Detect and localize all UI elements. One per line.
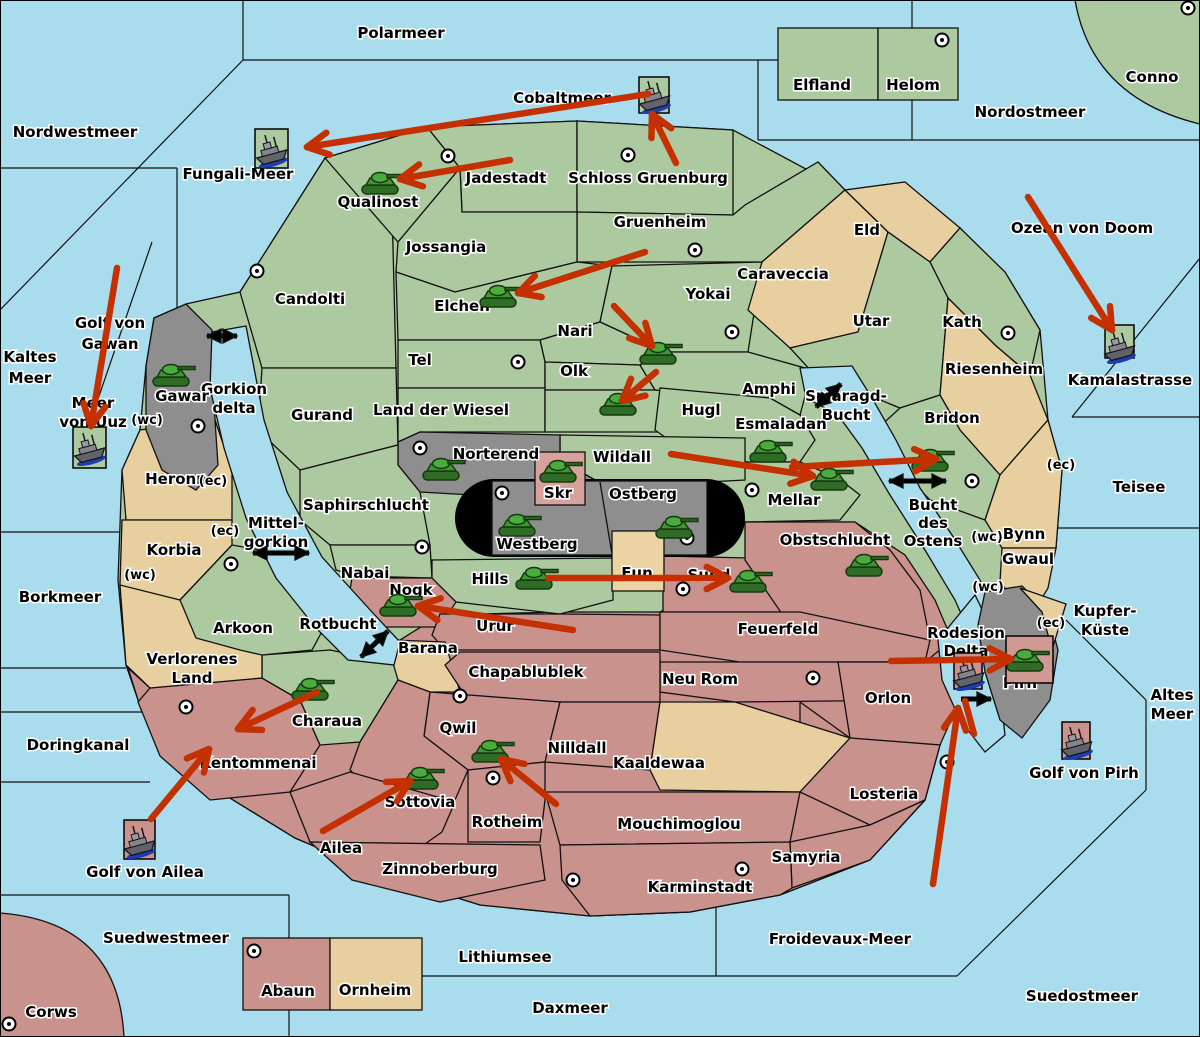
map-label: Losteria	[850, 785, 919, 803]
map-label: Gawar	[155, 387, 209, 405]
map-label: Hills	[472, 570, 509, 588]
city-marker	[677, 583, 690, 596]
map-label: Hugl	[681, 401, 720, 419]
map-label: Doringkanal	[27, 736, 130, 754]
map-label: Korbia	[146, 541, 201, 559]
map-label: Rotbucht	[299, 615, 376, 633]
map-label: Nari	[557, 322, 592, 340]
map-label: (ec)	[1037, 616, 1065, 631]
city-marker	[689, 244, 702, 257]
city-marker	[966, 475, 979, 488]
map-label: Westberg	[496, 535, 577, 553]
map-label: Jadestadt	[465, 169, 547, 187]
map-label: Bynn	[1003, 525, 1046, 543]
map-canvas: PolarmeerNordwestmeerCobaltmeerNordostme…	[0, 0, 1200, 1037]
city-marker	[180, 701, 193, 714]
city-marker	[192, 420, 205, 433]
city-marker	[454, 690, 467, 703]
map-label: Saphirschlucht	[303, 496, 429, 514]
map-label: Suedostmeer	[1026, 987, 1139, 1005]
map-label: Helom	[886, 76, 940, 94]
map-label: Barana	[398, 639, 458, 657]
map-label: Ailea	[320, 839, 362, 857]
map-label: Eld	[854, 221, 880, 239]
map-label: Candolti	[275, 290, 345, 308]
map-label: Teisee	[1113, 478, 1166, 496]
city-marker	[736, 863, 749, 876]
map-label: Amphi	[742, 380, 796, 398]
map-label: Wildall	[593, 448, 651, 466]
city-marker	[487, 772, 500, 785]
map-label: Kaaldewaa	[613, 754, 705, 772]
map-label: Schloss Gruenburg	[568, 169, 728, 187]
map-label: Rotheim	[472, 813, 543, 831]
map-label: (wc)	[971, 530, 1003, 545]
city-marker	[225, 558, 238, 571]
city-marker	[251, 265, 264, 278]
map-label: Gruenheim	[614, 213, 707, 231]
map-label: Conno	[1126, 68, 1179, 86]
city-marker	[496, 487, 509, 500]
map-label: Bridon	[924, 409, 980, 427]
map-label: (wc)	[131, 413, 163, 428]
map-label: (wc)	[972, 580, 1004, 595]
city-marker	[414, 442, 427, 455]
map-label: Olk	[560, 362, 589, 380]
map-label: Samyria	[772, 848, 841, 866]
map-label: Mellar	[768, 491, 822, 509]
map-label: Orlon	[865, 689, 911, 707]
map-label: Polarmeer	[357, 24, 445, 42]
map-label: Obstschlucht	[780, 531, 891, 549]
map-label: Tel	[408, 351, 432, 369]
map-label: Jossangia	[405, 238, 487, 256]
map-label: Elfland	[793, 76, 851, 94]
city-marker	[936, 34, 949, 47]
map-label: Kamalastrasse	[1068, 371, 1192, 389]
map-label: Heronn	[145, 470, 207, 488]
map-label: Caraveccia	[737, 265, 829, 283]
city-marker	[512, 356, 525, 369]
map-label: Corws	[25, 1003, 77, 1021]
map-label: Abaun	[261, 982, 315, 1000]
map-label: Charaua	[292, 712, 362, 730]
map-label: Suedwestmeer	[103, 929, 229, 947]
map-label: Kupfer-Küste	[1073, 602, 1136, 639]
city-marker	[1002, 327, 1015, 340]
city-marker	[622, 149, 635, 162]
map-label: Froidevaux-Meer	[769, 930, 912, 948]
map-label: (wc)	[124, 568, 156, 583]
map-label: Esmaladan	[735, 415, 827, 433]
map-label: Karminstadt	[648, 878, 753, 896]
map-label: (ec)	[211, 524, 239, 539]
map-label: Kath	[942, 313, 982, 331]
map-label: Arkoon	[213, 619, 273, 637]
map-label: Ornheim	[339, 981, 411, 999]
map-label: Qualinost	[338, 193, 419, 211]
map-label: Zinnoberburg	[382, 860, 498, 878]
map-label: Lithiumsee	[458, 948, 551, 966]
region-eun[interactable]	[612, 531, 664, 591]
map-label: Qwil	[440, 719, 477, 737]
city-marker	[3, 1018, 16, 1031]
city-marker	[442, 150, 455, 163]
map-label: Utar	[853, 312, 890, 330]
region-urur[interactable]	[432, 614, 660, 650]
city-marker	[1182, 2, 1195, 15]
map-label: Nilldall	[547, 739, 606, 757]
map-label: Mittel-gorkion	[244, 514, 309, 551]
map-label: Ostberg	[609, 485, 677, 503]
city-marker	[726, 326, 739, 339]
map-label: Skr	[544, 484, 573, 502]
map-label: Mouchimoglou	[617, 815, 740, 833]
game-map: PolarmeerNordwestmeerCobaltmeerNordostme…	[0, 0, 1200, 1037]
city-marker	[248, 945, 261, 958]
map-label: Feuerfeld	[738, 620, 819, 638]
map-label: Golf von Pirh	[1029, 764, 1139, 782]
map-label: Nordwestmeer	[13, 123, 138, 141]
map-label: Riesenheim	[945, 360, 1043, 378]
map-label: Nordostmeer	[975, 103, 1086, 121]
region-ornheim[interactable]	[330, 938, 422, 1010]
map-label: Borkmeer	[19, 588, 102, 606]
map-label: Gurand	[291, 406, 353, 424]
map-label: Chapablublek	[468, 663, 584, 681]
map-label: Daxmeer	[532, 999, 608, 1017]
region-schloss-gruenburg[interactable]	[577, 121, 733, 215]
map-label: Nabai	[341, 564, 390, 582]
map-label: Gwaul	[1002, 550, 1054, 568]
city-marker	[416, 541, 429, 554]
map-label: Land der Wiesel	[373, 401, 509, 419]
map-label: (ec)	[1047, 458, 1075, 473]
city-marker	[746, 484, 759, 497]
map-label: Yokai	[684, 285, 730, 303]
map-label: Ozean von Doom	[1011, 219, 1153, 237]
map-label: Kentommenai	[199, 754, 316, 772]
city-marker	[807, 672, 820, 685]
city-marker	[567, 874, 580, 887]
map-label: AltesMeer	[1150, 686, 1193, 723]
map-label: (ec)	[199, 474, 227, 489]
map-label: Golf von Ailea	[86, 863, 204, 881]
map-label: Neu Rom	[662, 670, 738, 688]
